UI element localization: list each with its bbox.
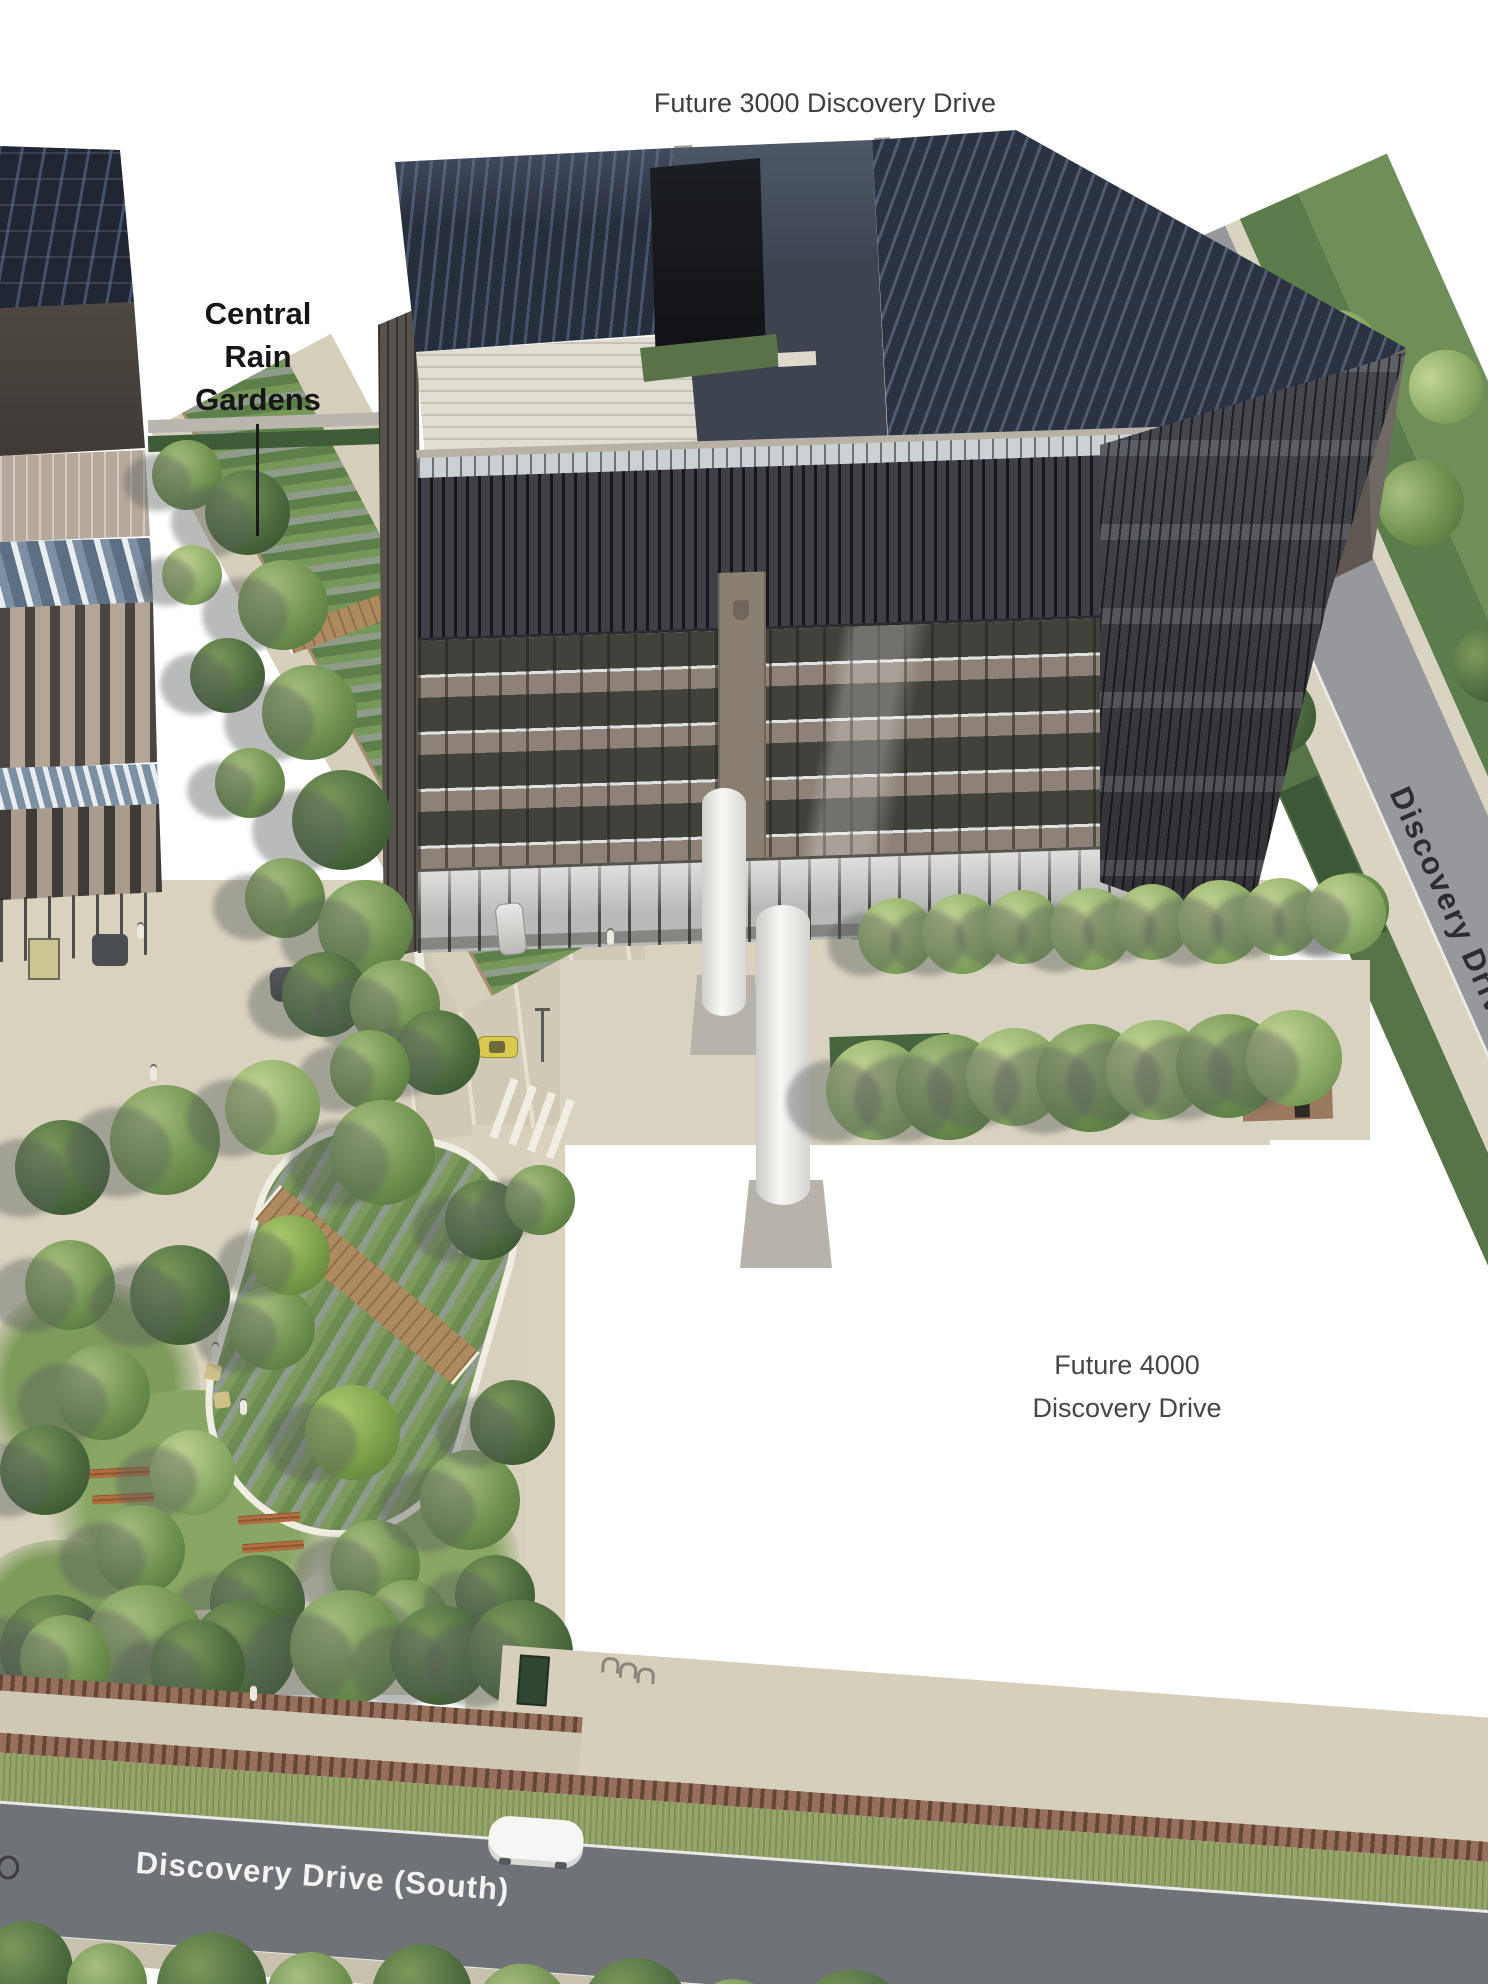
person (607, 930, 614, 945)
tree (262, 665, 357, 760)
label-future-4000: Future 4000 Discovery Drive (1007, 1344, 1247, 1430)
tree (230, 1285, 315, 1370)
building-left-windows (0, 804, 162, 900)
label-line: Discovery Drive (1007, 1387, 1247, 1430)
bike-rack (601, 1656, 620, 1673)
building-left-glass-band (0, 538, 154, 608)
discovery-drive-south-band: Discovery Drive (South) (0, 1662, 1488, 1984)
tree (330, 1030, 410, 1110)
bike-rack (636, 1667, 655, 1684)
label-line: Central (178, 292, 338, 335)
building-left-fascia (0, 300, 150, 456)
info-kiosk (28, 938, 60, 980)
building-left-windows (0, 602, 158, 770)
site-plan-rendering: Discovery Drive (0, 0, 1488, 1984)
bike-rack (619, 1662, 638, 1679)
tree (95, 1505, 185, 1595)
light-pole-arm (535, 1008, 550, 1011)
tree (150, 1430, 235, 1515)
light-pole (541, 1008, 544, 1062)
person (250, 1686, 257, 1701)
tree (250, 1215, 330, 1295)
car-wheel (499, 1857, 511, 1865)
person (150, 1066, 157, 1081)
tree (305, 1385, 400, 1480)
tree (238, 560, 328, 650)
tree (505, 1165, 575, 1235)
tree (330, 1100, 435, 1205)
facade-fin-band (418, 452, 1190, 641)
label-line: Rain (178, 335, 338, 378)
building-3000-front-facade (418, 432, 1190, 950)
storage-tank (756, 905, 810, 1205)
car-white (487, 1815, 585, 1870)
label-line: Future 4000 (1007, 1344, 1247, 1387)
label-leader-line (256, 424, 259, 536)
tree (470, 1380, 555, 1465)
building-left-glass-band (0, 764, 160, 810)
building-left-solar-roof (0, 140, 140, 310)
parked-car-silver (494, 902, 527, 957)
car-wheel (555, 1862, 567, 1870)
label-central-rain-gardens: Central Rain Gardens (178, 292, 338, 421)
label-future-3000: Future 3000 Discovery Drive (620, 88, 1030, 119)
roof-vent (778, 351, 817, 367)
facade-sheen (418, 615, 1190, 869)
tree (55, 1345, 150, 1440)
taxi-yellow (478, 1036, 518, 1058)
dumpster (516, 1654, 550, 1706)
label-line: Gardens (178, 378, 338, 421)
storage-tank (702, 788, 746, 1016)
building-left (0, 140, 175, 970)
tree (0, 1425, 90, 1515)
tree (1306, 874, 1386, 954)
lawn-chair (213, 1391, 231, 1409)
building-emblem (733, 600, 749, 621)
taxi-roof (489, 1041, 505, 1053)
person (240, 1400, 247, 1415)
person (137, 924, 144, 939)
tree (1246, 1010, 1342, 1106)
tree (292, 770, 392, 870)
van-dark (92, 934, 128, 966)
tree (205, 470, 290, 555)
